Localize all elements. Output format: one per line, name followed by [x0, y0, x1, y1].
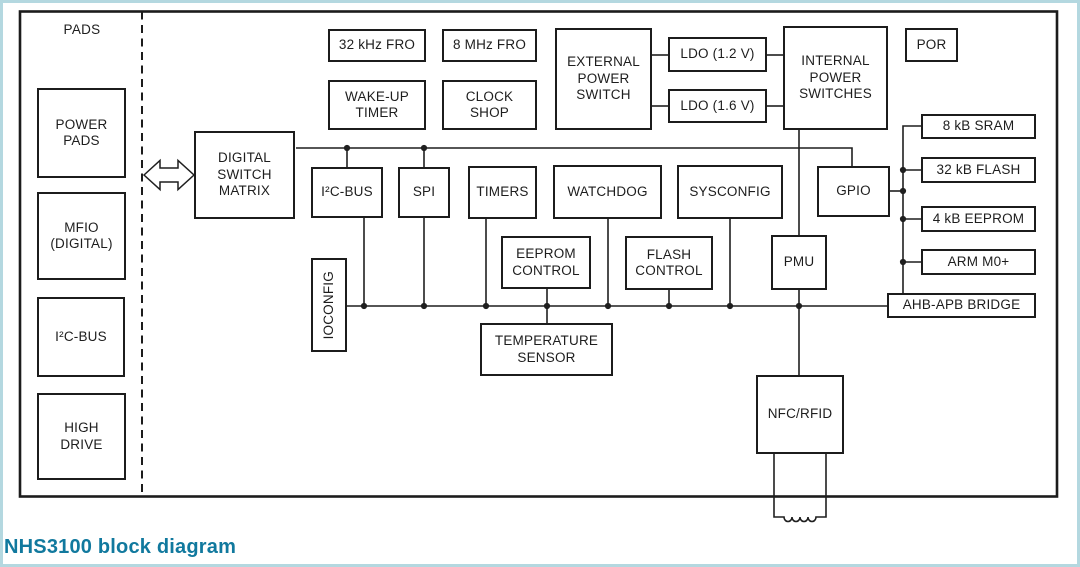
block-8mhz-fro: 8 MHz FRO: [442, 29, 537, 62]
block-label: TIMERS: [476, 184, 528, 200]
junction-dot: [605, 303, 611, 309]
wire-top-bus: [296, 148, 852, 166]
block-high-drive: HIGH DRIVE: [37, 393, 126, 480]
block-digital-switch-matrix: DIGITAL SWITCH MATRIX: [194, 131, 295, 219]
block-label: POWER PADS: [55, 117, 107, 150]
block-i2c-bus-pad: I²C-BUS: [37, 297, 125, 377]
junction-dot: [483, 303, 489, 309]
junction-dot: [544, 303, 550, 309]
block-ldo-1v6: LDO (1.6 V): [668, 89, 767, 123]
block-label: CLOCK SHOP: [466, 89, 514, 122]
block-4kb-eeprom: 4 kB EEPROM: [921, 206, 1036, 232]
junction-dot: [727, 303, 733, 309]
junction-dot: [361, 303, 367, 309]
block-gpio: GPIO: [817, 166, 890, 217]
block-label: MFIO (DIGITAL): [50, 220, 112, 253]
block-ldo-1v2: LDO (1.2 V): [668, 37, 767, 72]
block-wakeup-timer: WAKE-UP TIMER: [328, 80, 426, 130]
junction-dot: [421, 145, 427, 151]
block-label: 32 kHz FRO: [339, 37, 415, 53]
pads-region-label: PADS: [40, 22, 124, 37]
junction-dot: [900, 167, 906, 173]
block-sysconfig: SYSCONFIG: [677, 165, 783, 219]
block-8kb-sram: 8 kB SRAM: [921, 114, 1036, 139]
junction-dot: [900, 216, 906, 222]
block-label: I²C-BUS: [321, 184, 373, 200]
block-flash-control: FLASH CONTROL: [625, 236, 713, 290]
block-arm-m0: ARM M0+: [921, 249, 1036, 275]
block-label: DIGITAL SWITCH MATRIX: [217, 150, 271, 199]
block-pmu: PMU: [771, 235, 827, 290]
block-ahb-apb-bridge: AHB-APB BRIDGE: [887, 293, 1036, 318]
block-timers: TIMERS: [468, 166, 537, 219]
block-power-pads: POWER PADS: [37, 88, 126, 178]
nhs3100-block-diagram: PADS NHS3100 block diagram POWER PADS MF…: [0, 0, 1080, 567]
block-label: I²C-BUS: [55, 329, 107, 345]
block-i2c-bus: I²C-BUS: [311, 167, 383, 218]
block-label: HIGH DRIVE: [60, 420, 102, 453]
block-label: EEPROM CONTROL: [512, 246, 579, 279]
block-eeprom-control: EEPROM CONTROL: [501, 236, 591, 289]
block-label: SPI: [413, 184, 435, 200]
block-temperature-sensor: TEMPERATURE SENSOR: [480, 323, 613, 376]
junction-dot: [796, 303, 802, 309]
block-label: SYSCONFIG: [689, 184, 770, 200]
block-label: 8 MHz FRO: [453, 37, 526, 53]
block-label: IOCONFIG: [321, 271, 337, 339]
block-spi: SPI: [398, 167, 450, 218]
block-label: LDO (1.6 V): [680, 98, 754, 114]
block-internal-power-switches: INTERNAL POWER SWITCHES: [783, 26, 888, 130]
block-mfio-digital: MFIO (DIGITAL): [37, 192, 126, 280]
block-label: WAKE-UP TIMER: [345, 89, 409, 122]
block-label: TEMPERATURE SENSOR: [495, 333, 598, 366]
block-nfc-rfid: NFC/RFID: [756, 375, 844, 454]
block-label: NFC/RFID: [768, 406, 833, 422]
block-label: PMU: [784, 254, 815, 270]
antenna-coil-icon: [774, 454, 826, 522]
junction-dot: [421, 303, 427, 309]
junction-dot: [666, 303, 672, 309]
block-label: POR: [917, 37, 947, 53]
junction-dot: [900, 188, 906, 194]
block-clock-shop: CLOCK SHOP: [442, 80, 537, 130]
junction-dot: [344, 145, 350, 151]
junction-dot: [900, 259, 906, 265]
bidirectional-arrow-icon: [144, 161, 194, 190]
block-32kb-flash: 32 kB FLASH: [921, 157, 1036, 183]
block-external-power-switch: EXTERNAL POWER SWITCH: [555, 28, 652, 130]
block-label: 8 kB SRAM: [943, 118, 1015, 134]
block-label: 4 kB EEPROM: [933, 211, 1024, 227]
block-label: 32 kB FLASH: [937, 162, 1021, 178]
block-ioconfig: IOCONFIG: [311, 258, 347, 352]
block-por: POR: [905, 28, 958, 62]
block-32khz-fro: 32 kHz FRO: [328, 29, 426, 62]
block-watchdog: WATCHDOG: [553, 165, 662, 219]
block-label: GPIO: [836, 183, 871, 199]
figure-caption: NHS3100 block diagram: [4, 536, 236, 559]
block-label: INTERNAL POWER SWITCHES: [799, 53, 872, 102]
block-label: AHB-APB BRIDGE: [903, 297, 1021, 313]
block-label: LDO (1.2 V): [680, 46, 754, 62]
wire-memory-bus: [903, 126, 921, 293]
block-label: ARM M0+: [948, 254, 1010, 270]
block-label: WATCHDOG: [567, 184, 647, 200]
block-label: EXTERNAL POWER SWITCH: [567, 54, 640, 103]
block-label: FLASH CONTROL: [635, 247, 702, 280]
